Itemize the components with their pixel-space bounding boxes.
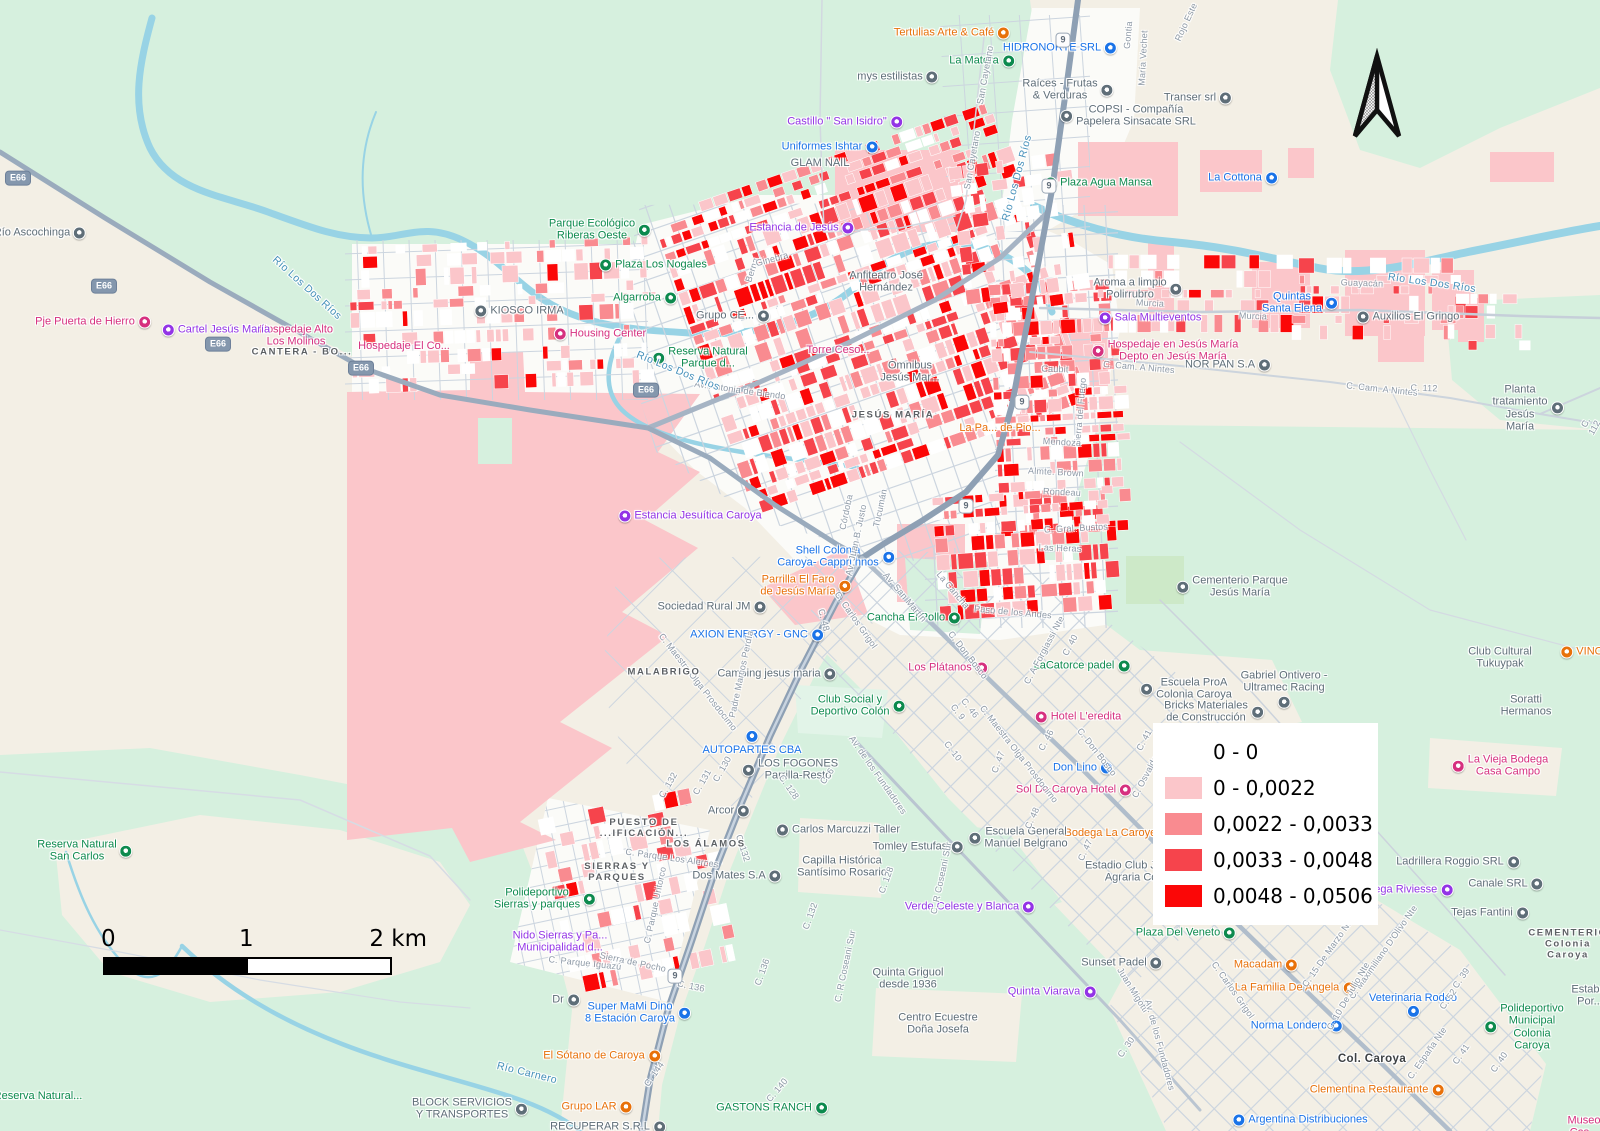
north-arrow-icon <box>1346 48 1410 148</box>
street-label: C. 132 <box>801 901 820 930</box>
poi-pin-icon <box>583 893 596 906</box>
poi-pin-icon <box>1101 84 1114 97</box>
poi-label-text: Housing Center <box>570 328 646 340</box>
river-label: Río Los Dos Ríos <box>270 254 344 322</box>
poi-label: La Vieja Bodega Casa Campo <box>1452 754 1549 779</box>
poi-pin-icon <box>678 1007 691 1020</box>
poi-pin-icon <box>753 601 766 614</box>
poi-pin-icon <box>1022 901 1035 914</box>
poi-pin-icon <box>1104 42 1117 55</box>
poi-label: Club Social y Deportivo Colón <box>811 694 906 719</box>
street-label: C. Don Bosco <box>1075 726 1119 778</box>
route-shield-e66: E66 <box>348 361 374 376</box>
poi-label-text: Reserva Natural... <box>0 1090 82 1102</box>
poi-label-text: Sunset Padel <box>1081 957 1146 969</box>
poi-label: Plaza Del Veneto <box>1136 927 1236 940</box>
street-label: C. 112 <box>1578 414 1600 437</box>
poi-pin-icon <box>474 305 487 318</box>
poi-label-text: Aroma a limpio Polirrubro <box>1093 277 1166 302</box>
street-label: C. 48 <box>816 608 831 632</box>
poi-label: Pje Puerta de Hierro <box>35 316 151 329</box>
area-label: SIERRAS Y PARQUES <box>584 861 649 883</box>
poi-label: Escuela General Manuel Belgrano <box>968 826 1067 851</box>
street-label: Tierra del Fuego <box>1072 377 1088 447</box>
legend-label: 0 - 0 <box>1213 740 1258 764</box>
poi-pin-icon <box>1099 312 1112 325</box>
poi-label-text: GLAM NAIL <box>791 157 850 169</box>
street-label: Córdoba <box>837 493 854 530</box>
street-label: Caubit <box>1041 364 1069 375</box>
poi-label-text: Estab... Por... <box>1571 984 1600 1009</box>
poi-pin-icon <box>1551 402 1564 415</box>
poi-label: La Pa... de Pio... <box>959 422 1040 434</box>
poi-label-text: Sol De Caroya Hotel <box>1016 784 1116 796</box>
poi-label-text: AXION ENERGY - GNC <box>690 629 808 641</box>
street-label: C. Carlos Grigol <box>833 590 880 651</box>
legend-swatch <box>1165 777 1202 799</box>
poi-pin-icon <box>926 71 939 84</box>
poi-pin-icon <box>1516 907 1529 920</box>
poi-label-text: Parrilla El Faro de Jesús María <box>760 574 835 599</box>
river-label: Río Carnero <box>496 1060 559 1087</box>
street-label: Juan Migotti <box>1115 966 1150 1014</box>
poi-pin-icon <box>1223 927 1236 940</box>
poi-label: Ómnibus Jesús Mar... <box>880 360 939 385</box>
street-label: Rojo Este <box>1173 1 1199 42</box>
poi-pin-icon <box>737 805 750 818</box>
street-label: Tucumán <box>871 488 889 528</box>
poi-label-text: Los Plátanos <box>908 662 972 674</box>
street-label: C. 41 <box>1450 1042 1471 1066</box>
poi-label: Macadam <box>1234 959 1298 972</box>
poi-pin-icon <box>882 551 895 564</box>
poi-pin-icon <box>1258 359 1271 372</box>
poi-label: El Sótano de Caroya <box>543 1050 661 1063</box>
poi-pin-icon <box>865 141 878 154</box>
poi-pin-icon <box>1531 878 1544 891</box>
street-label: Almte. Brown <box>1028 466 1084 479</box>
poi-pin-icon <box>1092 345 1105 358</box>
poi-label-text: Quinta Griguol desde 1936 <box>873 967 944 992</box>
poi-label: Sunset Padel <box>1081 957 1162 970</box>
poi-pin-icon <box>1140 683 1153 696</box>
poi-pin-icon <box>815 1102 828 1115</box>
poi-pin-icon <box>1150 957 1163 970</box>
poi-pin-icon <box>653 1121 666 1131</box>
poi-label: La Familia De Angela <box>1235 982 1356 995</box>
poi-label: Hotel L'eredita <box>1035 711 1122 724</box>
poi-label: Auxilios El Gringo <box>1357 311 1460 324</box>
map-canvas: Tertulias Arte & CaféHIDRONORTE SRLLa Ma… <box>0 0 1600 1131</box>
poi-label-text: Cancha El Pollo <box>867 612 945 624</box>
street-label: San Cayetano <box>962 130 982 190</box>
poi-label-text: Club Cultural Tukuypak <box>1450 646 1550 671</box>
poi-pin-icon <box>162 324 175 337</box>
poi-label-text: Nido Sierras y Pa... Municipalidad d... <box>513 930 608 955</box>
poi-label-text: Sociedad Rural JM <box>658 601 751 613</box>
poi-label: Uniformes Ishtar <box>782 141 879 154</box>
street-label: Av. de los Fundadores <box>847 734 909 816</box>
poi-label: Castillo " San Isidro" <box>787 116 903 129</box>
scale-tick-2: 2 km <box>369 926 427 952</box>
poi-label: Los Plátanos <box>908 662 988 675</box>
legend-item: 0 - 0 <box>1165 740 1378 764</box>
poi-label: COPSI - Compañía Papelera Sinsacate SRL <box>1060 104 1196 129</box>
street-label: C. Cam. A Nintes <box>1103 359 1175 375</box>
poi-label-text: La Familia De Angela <box>1235 982 1340 994</box>
river-label: Río Los Dos Ríos <box>1387 271 1476 295</box>
poi-label-text: Anfiteatro José Hernández <box>849 270 922 295</box>
poi-label: Sol De Caroya Hotel <box>1016 784 1132 797</box>
area-label: CANTERA - BO... <box>252 347 353 358</box>
poi-label-text: Clementina Restaurante <box>1310 1084 1429 1096</box>
poi-label-text: RECUPERAR S.R.L <box>550 1121 650 1131</box>
poi-label-text: Reserva Natural Parque d... <box>668 346 747 371</box>
street-label: C. 46 <box>1036 728 1055 753</box>
poi-label: Raíces - Frutas & Verduras <box>1022 78 1113 103</box>
poi-label-text: Verde Celeste y Blanca <box>905 901 1019 913</box>
street-label: Berna <box>743 257 760 284</box>
poi-pin-icon <box>1100 762 1113 775</box>
poi-label: Plaza Agua Mansa <box>1044 177 1152 190</box>
poi-label: Sala Multieventos <box>1099 312 1202 325</box>
street-label: Mendoza <box>1043 436 1082 448</box>
scale-bar-filled-segment <box>105 959 248 973</box>
poi-label-text: KIOSCO IRMA <box>490 305 563 317</box>
poi-label: Centro Ecuestre Doña Josefa <box>898 1012 977 1037</box>
poi-label-text: Raíces - Frutas & Verduras <box>1022 78 1097 103</box>
poi-pin-icon <box>1219 92 1232 105</box>
poi-label: Cancha El Pollo <box>867 612 961 625</box>
poi-label: Arcor <box>708 805 750 818</box>
poi-pin-icon <box>618 510 631 523</box>
poi-label: Reserva Natural... <box>0 1090 82 1102</box>
legend-label: 0,0022 - 0,0033 <box>1213 812 1373 836</box>
poi-label: AUTOPARTES CBA <box>702 730 801 756</box>
poi-label: GLAM NAIL <box>791 157 850 169</box>
poi-label-text: Museo Cas... <box>1567 1115 1600 1131</box>
street-label: C. Carlos Grigol <box>1210 960 1257 1021</box>
poi-label-text: Sala Multieventos <box>1115 312 1202 324</box>
route-shield-r9: 9 <box>958 499 973 514</box>
street-label: Av. de los Fundadores <box>1143 999 1177 1092</box>
street-label: C. 40 <box>1488 1050 1509 1074</box>
poi-pin-icon <box>824 668 837 681</box>
street-label: Rondeau <box>1043 486 1081 498</box>
poi-label: Ladrillera Roggio SRL <box>1396 856 1520 869</box>
street-label: C. 48 <box>1023 806 1042 831</box>
scale-bar-track <box>103 957 392 975</box>
poi-pin-icon <box>842 222 855 235</box>
poi-label-text: Veterinaria Rodeo <box>1369 992 1457 1004</box>
street-label: Av. Juan B. Justo <box>844 503 869 576</box>
poi-label-text: Shell Colonia Caroya- Cappri hnos <box>777 545 879 570</box>
legend-swatch <box>1165 885 1202 907</box>
legend-item: 0 - 0,0022 <box>1165 776 1378 800</box>
poi-pin-icon <box>968 832 981 845</box>
poi-label: Tertulias Arte & Café <box>894 27 1010 40</box>
poi-pin-icon <box>1060 110 1073 123</box>
poi-label-text: Reserva Natural San Carlos <box>37 839 116 864</box>
poi-pin-icon <box>950 841 963 854</box>
poi-label-text: Gabriel Ontivero - Ultramec Racing <box>1241 670 1328 695</box>
poi-label-text: Tertulias Arte & Café <box>894 27 994 39</box>
poi-label-text: Torre Ceso... <box>807 344 870 356</box>
poi-label-text: Pje Puerta de Hierro <box>35 316 135 328</box>
poi-label-text: Hospedaje El Co... <box>358 340 450 352</box>
poi-label: Polideportivo Municipal Colonia Caroya <box>1484 1002 1564 1051</box>
poi-label-text: Argentina Distribuciones <box>1248 1114 1367 1126</box>
poi-label-text: HIDRONORTE SRL <box>1003 42 1101 54</box>
legend-item: 0,0022 - 0,0033 <box>1165 812 1378 836</box>
poi-label: Canale SRL <box>1468 878 1543 891</box>
poi-pin-icon <box>742 764 755 777</box>
street-label: C. 140 <box>764 1076 789 1104</box>
legend-swatch <box>1165 741 1202 763</box>
poi-label: VINOS... <box>1560 646 1600 659</box>
route-shield-e66: E66 <box>633 383 659 398</box>
poi-pin-icon <box>892 700 905 713</box>
poi-label: Gabriel Ontivero - Ultramec Racing <box>1241 670 1328 709</box>
poi-pin-icon <box>1431 1084 1444 1097</box>
scale-tick-0: 0 <box>101 926 116 952</box>
poi-pin-icon <box>648 1050 661 1063</box>
street-label: C. A Forgiassi Nte <box>1022 614 1066 685</box>
street-label: C. R Coseani Sur <box>928 841 953 915</box>
river-label: Río Los Dos Ríos <box>1000 134 1035 223</box>
poi-label: Carlos Marcuzzi Taller <box>776 824 900 837</box>
poi-pin-icon <box>757 310 770 323</box>
poi-label-text: Super MaMi Dino 8 Estación Caroya <box>585 1001 675 1026</box>
poi-label: Verde Celeste y Blanca <box>905 901 1035 914</box>
poi-label: Grupo LAR <box>561 1101 632 1114</box>
poi-label-text: mys estilistas <box>857 71 922 83</box>
street-label: Av. Antonia de Biendo <box>694 379 786 402</box>
street-label: C. 136 <box>753 957 772 986</box>
poi-label-text: Arcor <box>708 805 734 817</box>
street-label: Guayacán <box>1341 277 1384 288</box>
poi-label-text: Carlos Marcuzzi Taller <box>792 824 900 836</box>
poi-label: AXION ENERGY - GNC <box>690 629 824 642</box>
poi-label: mys estilistas <box>857 71 938 84</box>
poi-pin-icon <box>1407 1005 1420 1018</box>
poi-pin-icon <box>839 580 852 593</box>
poi-label-text: AUTOPARTES CBA <box>702 744 801 756</box>
poi-pin-icon <box>1265 172 1278 185</box>
poi-label-text: Dr <box>552 994 564 1006</box>
street-label: C. 52 <box>1437 987 1458 1011</box>
poi-label: Cartel Jesús María <box>162 324 270 337</box>
poi-label-text: Camping jesus maria <box>717 668 820 680</box>
poi-label: Quinta Viarava <box>1008 986 1097 999</box>
poi-label-text: Bricks Materiales de Construcción <box>1164 700 1248 725</box>
route-shield-r9: 9 <box>667 969 682 984</box>
poi-label-text: Cementerio Parque Jesús María <box>1192 575 1287 600</box>
poi-label: LaCatorce padel <box>1034 660 1131 673</box>
poi-pin-icon <box>620 1101 633 1114</box>
poi-pin-icon <box>1452 760 1465 773</box>
poi-pin-icon <box>664 292 677 305</box>
poi-label: Hospedaje Alto Los Molinos <box>259 324 333 349</box>
legend-swatch <box>1165 813 1202 835</box>
poi-pin-icon <box>652 352 665 365</box>
poi-label: Parrilla El Faro de Jesús María <box>760 574 851 599</box>
poi-pin-icon <box>138 316 151 329</box>
street-label: C. 128 <box>777 773 801 801</box>
poi-pin-icon <box>769 870 782 883</box>
poi-label-text: Polideportivo Sierras y parques <box>494 887 580 912</box>
poi-label: Reserva Natural Parque d... <box>652 346 747 371</box>
poi-label-text: Hospedaje Alto Los Molinos <box>259 324 333 349</box>
route-shield-e66: E66 <box>205 337 231 352</box>
area-label: CEMENTERIO Colonia Caroya <box>1528 928 1600 961</box>
poi-label-text: LaCatorce padel <box>1034 660 1115 672</box>
route-shield-r9: 9 <box>1014 395 1029 410</box>
poi-label-text: Hospedaje en Jesús María Depto en Jesús … <box>1108 339 1239 364</box>
poi-pin-icon <box>1325 297 1338 310</box>
poi-label-text: BLOCK SERVICIOS Y TRANSPORTES <box>412 1097 512 1122</box>
poi-label: Museo Cas... <box>1567 1115 1600 1131</box>
poi-pin-icon <box>638 224 651 237</box>
poi-label: Sociedad Rural JM <box>658 601 767 614</box>
poi-label: La Cottona <box>1208 172 1278 185</box>
poi-pin-icon <box>890 116 903 129</box>
street-label: C. 128 <box>877 865 896 894</box>
poi-label: Hospedaje El Co... <box>358 340 450 352</box>
poi-label: Tejas Fantini <box>1451 907 1529 920</box>
poi-label-text: Don Lino <box>1053 762 1097 774</box>
poi-pin-icon <box>1484 1021 1497 1034</box>
poi-pin-icon <box>1119 784 1132 797</box>
route-shield-e66: E66 <box>5 171 31 186</box>
poi-label-text: Plaza Del Veneto <box>1136 927 1220 939</box>
poi-label: Dr <box>552 994 580 1007</box>
poi-label-text: Estancia de Jesús <box>749 222 838 234</box>
poi-label-text: COPSI - Compañía Papelera Sinsacate SRL <box>1076 104 1196 129</box>
poi-label: Quinta Griguol desde 1936 <box>873 967 944 992</box>
poi-label-text: Tejas Fantini <box>1451 907 1513 919</box>
legend-label: 0 - 0,0022 <box>1213 776 1316 800</box>
map-legend: 0 - 00 - 0,00220,0022 - 0,00330,0033 - 0… <box>1153 723 1378 925</box>
area-label: JESÚS MARÍA <box>852 410 935 421</box>
poi-label: Club Cultural Tukuypak <box>1450 646 1550 671</box>
poi-label: Estancia Jesuítica Caroya <box>618 510 761 523</box>
scale-tick-1: 1 <box>239 926 254 952</box>
street-label: Murcia <box>1239 311 1268 322</box>
poi-label-text: El Sótano de Caroya <box>543 1050 645 1062</box>
poi-pin-icon <box>1251 706 1264 719</box>
street-label: María Vechet <box>1137 30 1150 86</box>
street-label: Murcia <box>1136 297 1165 308</box>
poi-label: Grupo CE... <box>696 310 770 323</box>
poi-label: Parque Ecológico Riberas Oeste <box>549 218 651 243</box>
poi-label-text: NOR PAN S.A <box>1185 359 1255 371</box>
poi-label-text: Transer srl <box>1164 92 1216 104</box>
poi-pin-icon <box>1232 1114 1245 1127</box>
poi-label: Reserva Natural San Carlos <box>37 839 132 864</box>
legend-item: 0,0033 - 0,0048 <box>1165 848 1378 872</box>
poi-pin-icon <box>567 994 580 1007</box>
street-label: Av. San Martín <box>881 570 928 624</box>
poi-label-text: Parque Ecológico Riberas Oeste <box>549 218 635 243</box>
street-label: C. R Coseani Sur <box>832 929 857 1003</box>
poi-pin-icon <box>948 612 961 625</box>
route-shield-e66: E66 <box>91 279 117 294</box>
street-label: C. 6 <box>818 766 836 786</box>
street-label: C. Parque Los Alerces <box>625 847 719 870</box>
legend-item: 0,0048 - 0,0506 <box>1165 884 1378 908</box>
poi-pin-icon <box>1002 55 1015 68</box>
poi-label: Veterinaria Rodeo <box>1369 992 1457 1018</box>
poi-label: Hospedaje en Jesús María Depto en Jesús … <box>1092 339 1239 364</box>
poi-label: Don Lino <box>1053 762 1113 775</box>
poi-label-text: Centro Ecuestre Doña Josefa <box>898 1012 977 1037</box>
poi-label-text: La Pa... de Pio... <box>959 422 1040 434</box>
poi-label: Planta tratamiento Jesús María <box>1492 383 1564 432</box>
street-label: C. 10 De Julio Nte <box>1325 960 1372 1031</box>
poi-label: Norma Londero <box>1251 1020 1343 1033</box>
poi-pin-icon <box>1357 311 1370 324</box>
poi-label: Plaza Los Nogales <box>599 259 707 272</box>
street-label: C. 15 De Marzo Nte <box>1300 915 1356 989</box>
poi-pin-icon <box>1507 856 1520 869</box>
street-label: C. 41 <box>1134 728 1153 753</box>
route-shield-r9: 9 <box>1055 33 1070 48</box>
poi-label: Quintas Santa Elena <box>1262 291 1338 316</box>
poi-label: KIOSCO IRMA <box>474 305 563 318</box>
poi-label-text: Uniformes Ishtar <box>782 141 863 153</box>
poi-label: Housing Center <box>554 328 646 341</box>
street-label: C. 39 <box>1450 966 1471 990</box>
poi-label: Algarroba <box>613 292 677 305</box>
poi-label: Transer srl <box>1164 92 1232 105</box>
poi-label-text: La Cottona <box>1208 172 1262 184</box>
area-label: PUESTO DE ...IFICACIÓN... <box>600 817 688 839</box>
poi-label-text: VINOS... <box>1576 646 1600 658</box>
poi-label-text: Escuela ProA Colonia Caroya <box>1156 677 1232 702</box>
poi-label-text: Hotel L'eredita <box>1051 711 1122 723</box>
poi-label-text: Plaza Los Nogales <box>615 259 707 271</box>
poi-label-text: Dos Mates S.A <box>692 870 765 882</box>
street-label: C. Don Bosco <box>946 629 990 681</box>
poi-pin-icon <box>120 845 133 858</box>
poi-label: Estab... Por... <box>1571 984 1600 1009</box>
poi-label-text: Club Social y Deportivo Colón <box>811 694 890 719</box>
area-label: LOS ÁLAMOS <box>666 839 745 850</box>
street-label: C. 47 <box>1076 838 1095 863</box>
poi-label-text: GASTONS RANCH <box>716 1102 812 1114</box>
poi-label: Anfiteatro José Hernández <box>849 270 922 295</box>
poi-label-text: LOS FOGONES Parrilla-Restó <box>758 758 838 783</box>
street-label: C. Cam. A Nintes <box>1346 380 1418 397</box>
poi-label-text: Grupo CE... <box>696 310 754 322</box>
poi-label: GASTONS RANCH <box>716 1102 828 1115</box>
area-label: MALABRIGO <box>628 667 701 678</box>
poi-label: Shell Colonia Caroya- Cappri hnos <box>777 545 895 570</box>
street-label: Las Heras <box>1038 542 1081 553</box>
poi-label: Argentina Distribuciones <box>1232 1114 1367 1127</box>
poi-pin-icon <box>746 730 759 743</box>
poi-pin-icon <box>515 1103 528 1116</box>
poi-pin-icon <box>599 259 612 272</box>
poi-pin-icon <box>73 227 86 240</box>
street-label: C. 47 <box>989 750 1006 775</box>
street-label: C. 46 <box>959 696 981 720</box>
street-label: C. Maestra Olga Prosdocimo <box>657 631 739 732</box>
poi-label-text: Cartel Jesús María <box>178 324 270 336</box>
poi-pin-icon <box>1035 711 1048 724</box>
legend-label: 0,0048 - 0,0506 <box>1213 884 1373 908</box>
